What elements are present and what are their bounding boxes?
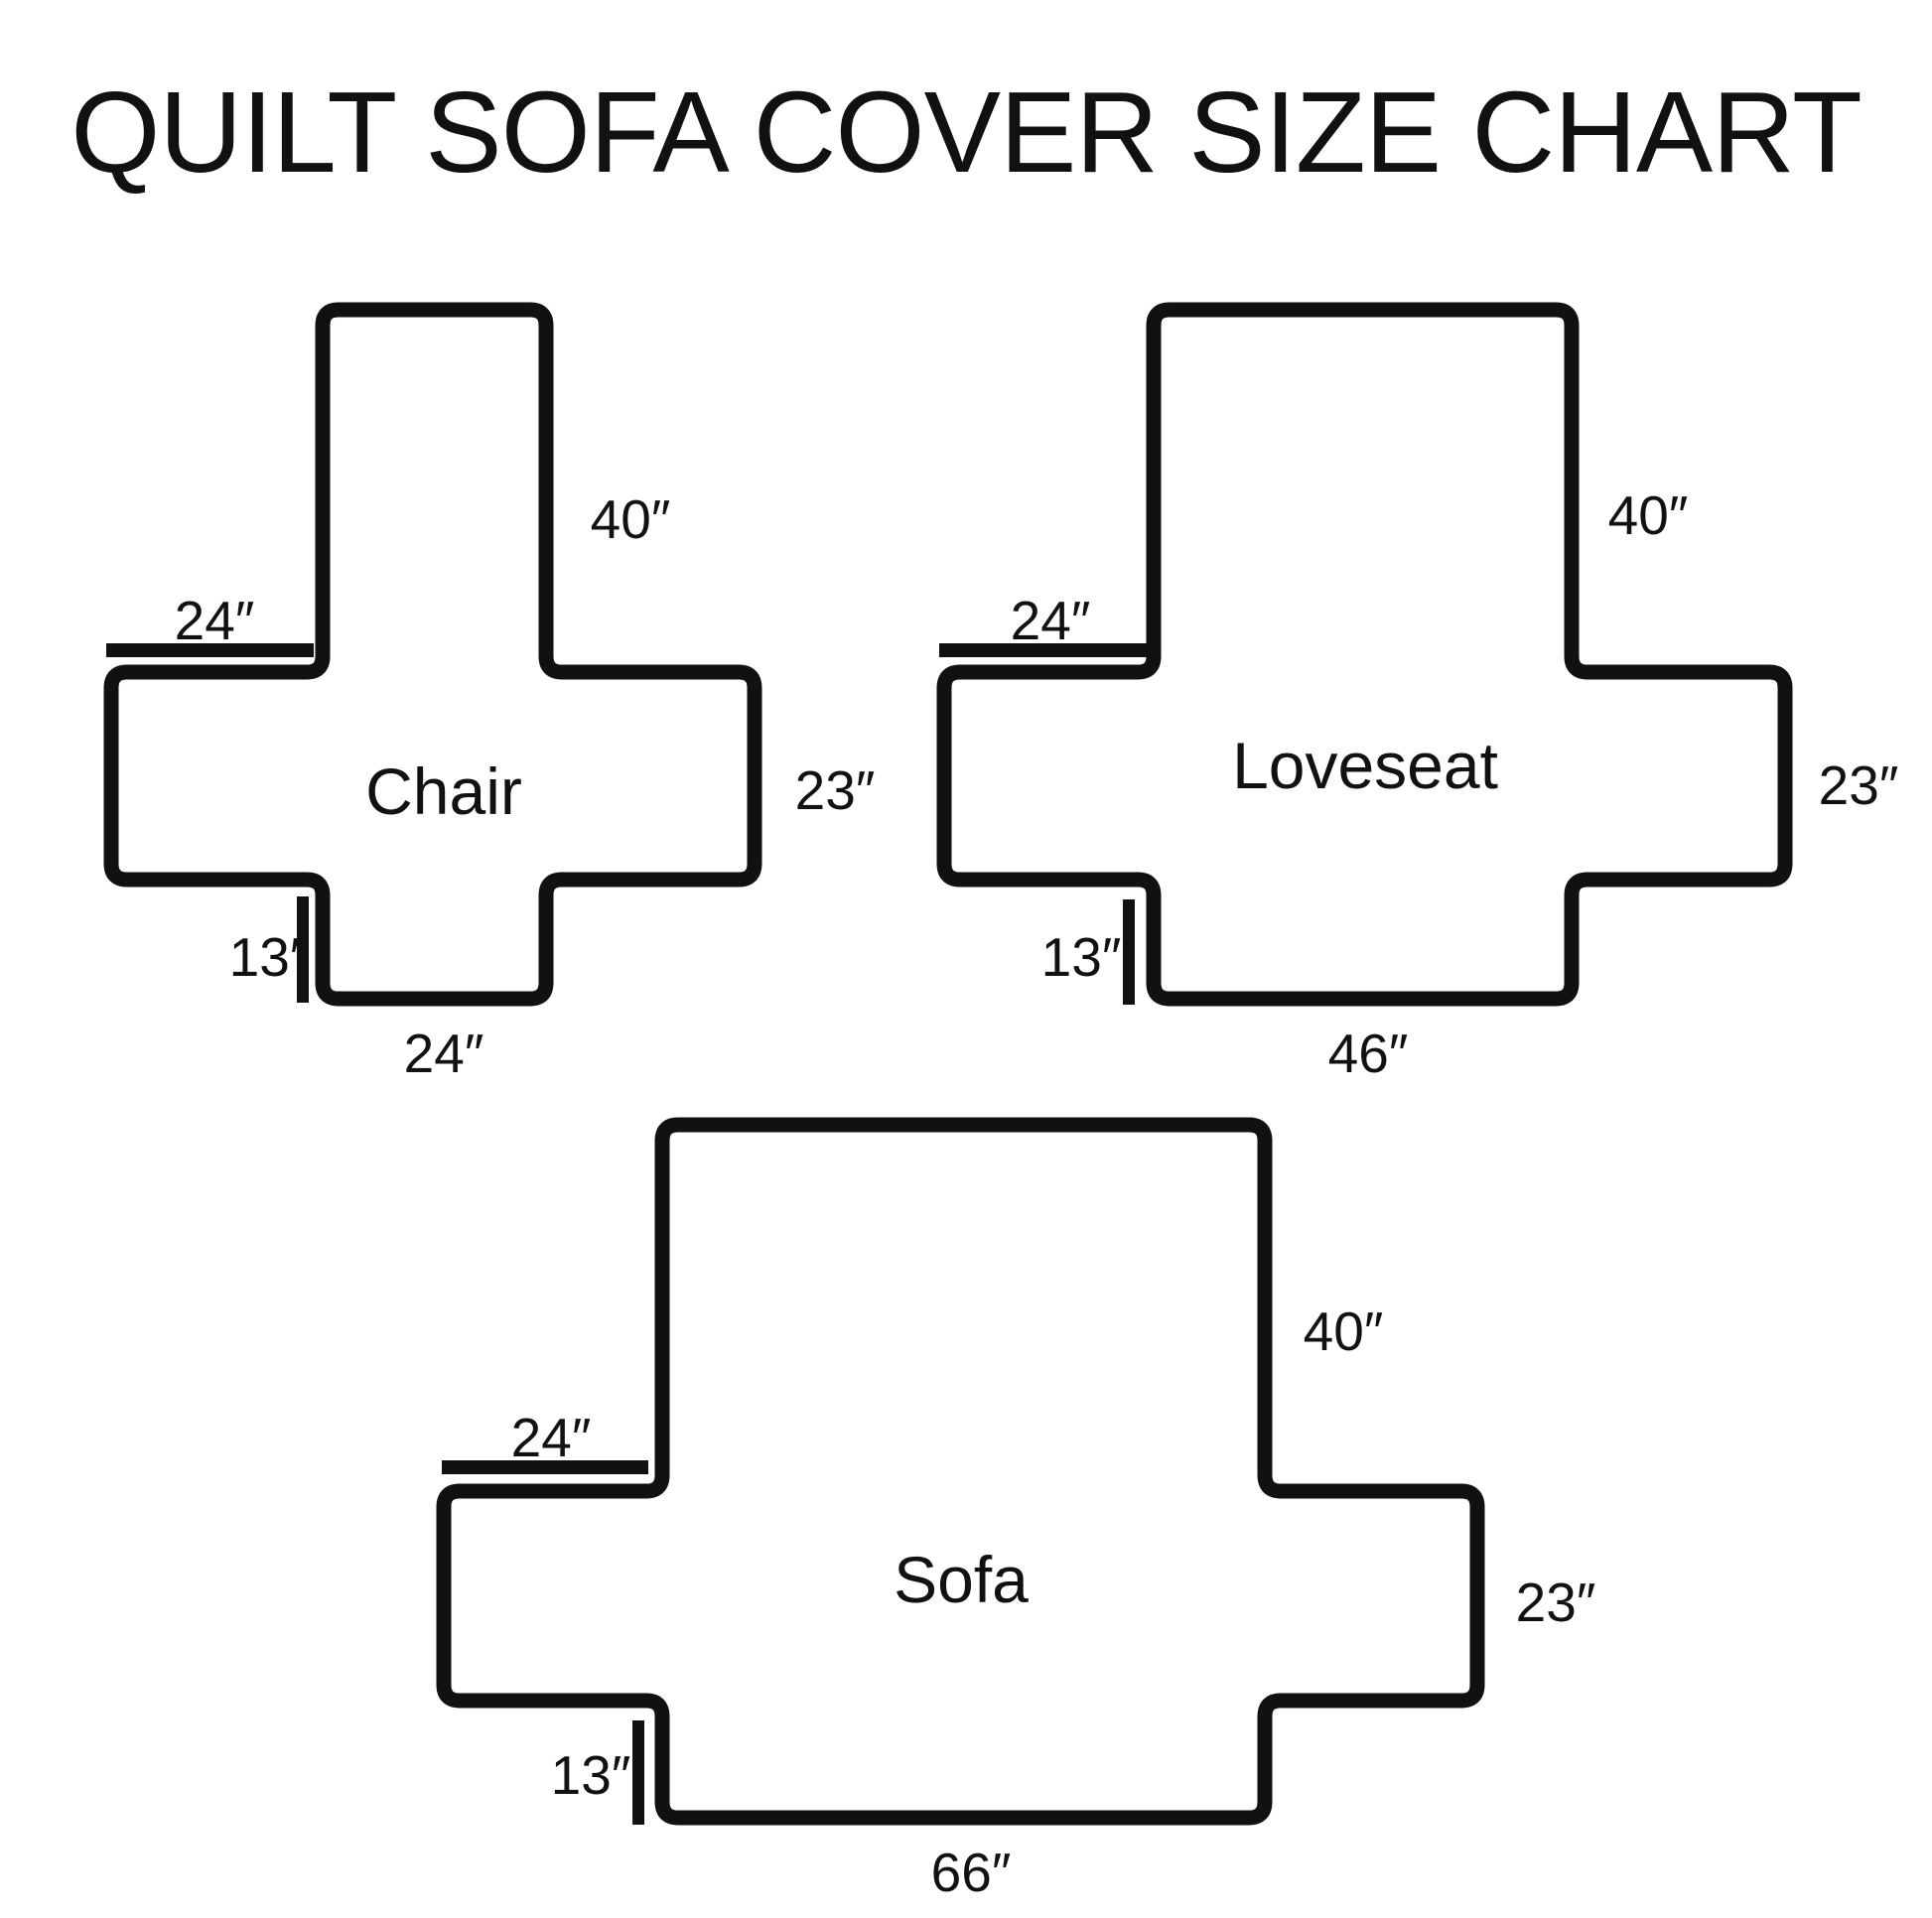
chair-diagram: 40″ 24″ Chair 23″ 13″ 24″ bbox=[106, 310, 875, 1084]
chair-skirt-height-label: 13″ bbox=[229, 926, 310, 988]
chair-side-depth-label: 23″ bbox=[795, 759, 876, 821]
sofa-side-depth-label: 23″ bbox=[1516, 1572, 1596, 1633]
chair-name-label: Chair bbox=[365, 754, 522, 828]
loveseat-name-label: Loveseat bbox=[1232, 729, 1498, 802]
sofa-back-height-label: 40″ bbox=[1304, 1301, 1384, 1362]
sofa-arm-top-width-label: 24″ bbox=[511, 1407, 592, 1468]
chair-back-height-label: 40″ bbox=[591, 488, 671, 550]
size-chart-page: QUILT SOFA COVER SIZE CHART 40″ 24″ Chai… bbox=[0, 0, 1932, 1918]
loveseat-diagram: 40″ 24″ Loveseat 23″ 13″ 46″ bbox=[939, 310, 1898, 1084]
chair-bottom-width-label: 24″ bbox=[404, 1023, 484, 1084]
loveseat-back-height-label: 40″ bbox=[1608, 484, 1689, 546]
loveseat-bottom-width-label: 46″ bbox=[1328, 1023, 1409, 1084]
sofa-bottom-width-label: 66″ bbox=[931, 1842, 1012, 1903]
size-chart-figure: QUILT SOFA COVER SIZE CHART 40″ 24″ Chai… bbox=[0, 0, 1932, 1918]
sofa-diagram: 40″ 24″ Sofa 23″ 13″ 66″ bbox=[442, 1125, 1595, 1903]
loveseat-arm-top-width-label: 24″ bbox=[1011, 590, 1091, 651]
page-title: QUILT SOFA COVER SIZE CHART bbox=[70, 68, 1862, 197]
loveseat-skirt-height-label: 13″ bbox=[1041, 926, 1122, 988]
sofa-skirt-height-label: 13″ bbox=[551, 1744, 631, 1806]
sofa-name-label: Sofa bbox=[894, 1543, 1029, 1616]
loveseat-side-depth-label: 23″ bbox=[1819, 754, 1899, 816]
chair-arm-top-width-label: 24″ bbox=[175, 590, 255, 651]
